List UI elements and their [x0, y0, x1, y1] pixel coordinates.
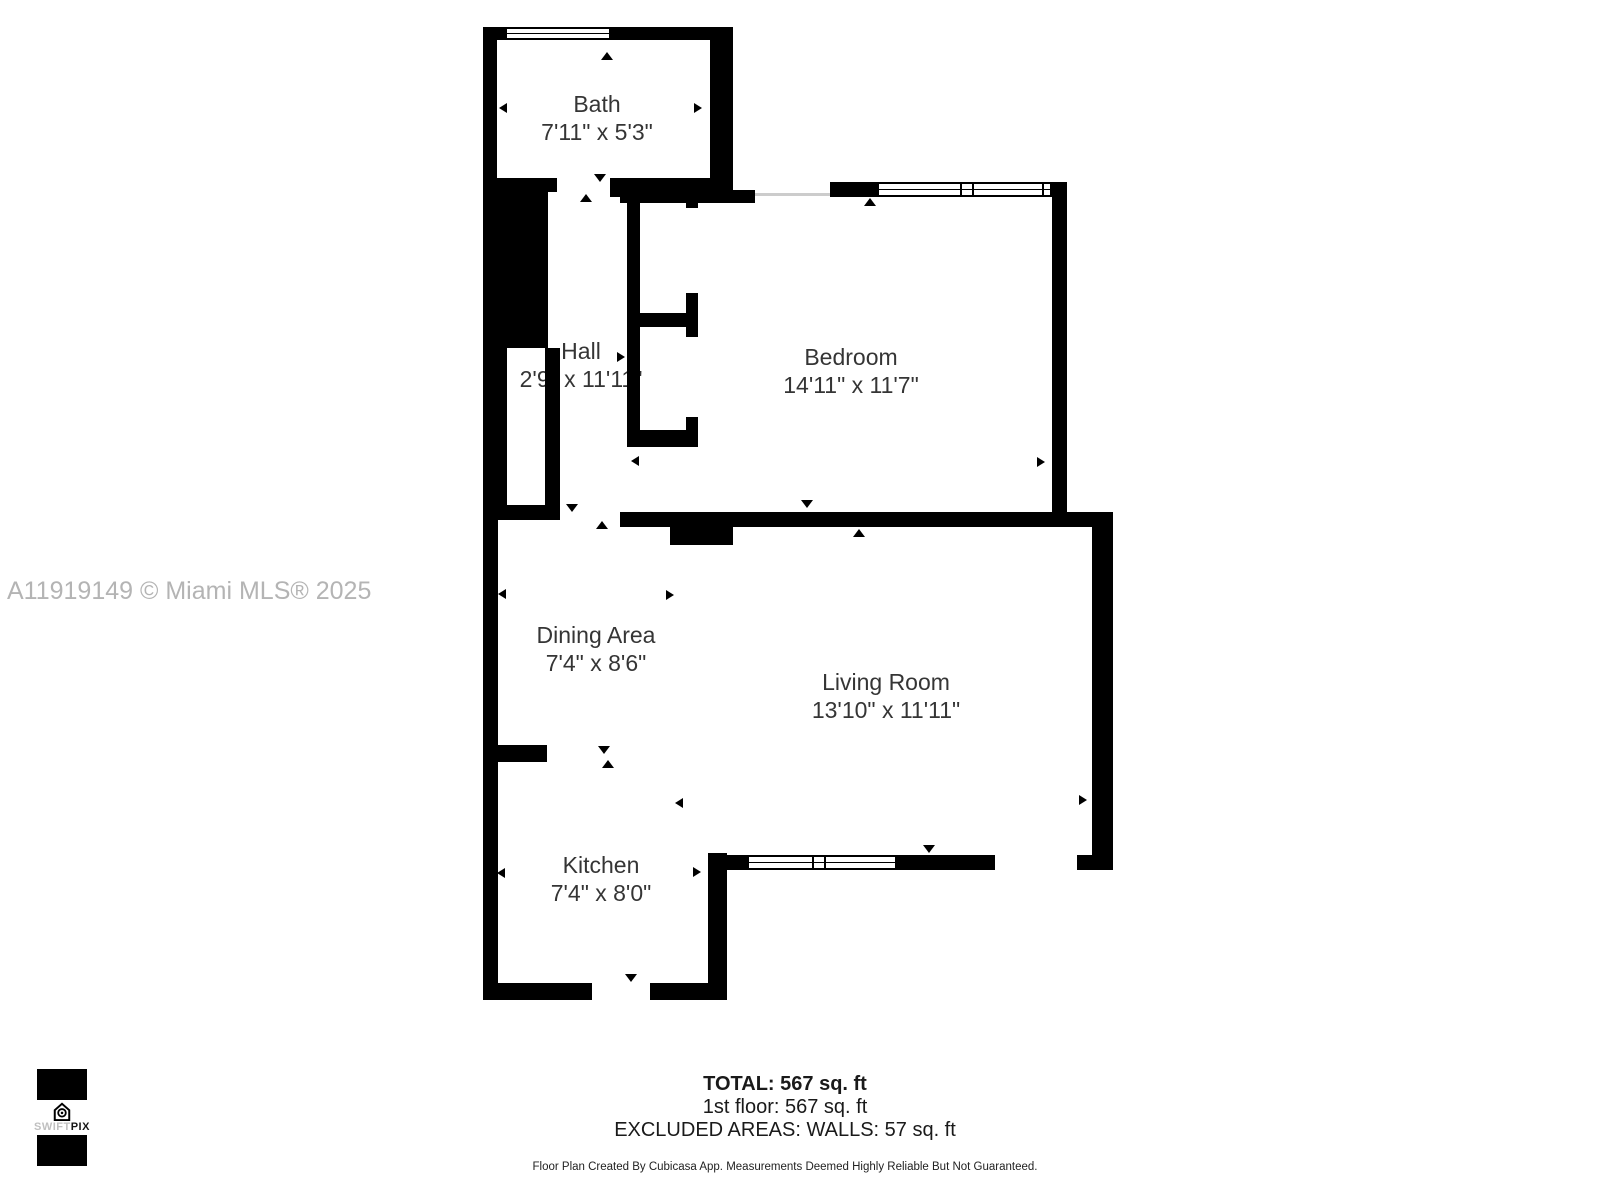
- wall-bedroom-bottom: [620, 512, 1067, 527]
- measure-arrow-right-icon: [617, 352, 625, 362]
- opening-threshold: [755, 193, 830, 196]
- wall-living-bottom-left: [708, 855, 747, 870]
- window-glass-line: [879, 189, 1050, 191]
- window-mullion: [972, 184, 974, 195]
- measure-arrow-up-icon: [853, 529, 865, 537]
- measure-arrow-up-icon: [601, 52, 613, 60]
- disclaimer-text: Floor Plan Created By Cubicasa App. Meas…: [533, 1161, 1038, 1173]
- wall-dining-kitchen-stub: [483, 745, 547, 762]
- wall-kitchen-left: [483, 762, 498, 1000]
- room-label-bath: Bath 7'11" x 5'3": [541, 90, 653, 146]
- room-name: Bedroom: [783, 343, 919, 371]
- room-dims: 13'10" x 11'11": [812, 696, 960, 724]
- wall-bedroom-right: [1052, 182, 1067, 527]
- room-name: Dining Area: [537, 621, 656, 649]
- wall-bath-top-left: [483, 27, 507, 40]
- measure-arrow-left-icon: [497, 868, 505, 878]
- room-name: Bath: [541, 90, 653, 118]
- logo-pix-text: PIX: [71, 1121, 90, 1133]
- logo-bottom-block: [37, 1135, 87, 1166]
- wall-closet-right-top: [686, 190, 698, 208]
- wall-living-right: [1092, 512, 1113, 855]
- room-name: Kitchen: [551, 851, 652, 879]
- measure-arrow-down-icon: [598, 746, 610, 754]
- measure-arrow-right-icon: [693, 867, 701, 877]
- room-label-living: Living Room 13'10" x 11'11": [812, 668, 960, 724]
- measure-arrow-up-icon: [596, 521, 608, 529]
- house-camera-icon: [52, 1102, 72, 1121]
- wall-hall-left: [545, 348, 560, 520]
- wall-kitchen-bottom-left: [483, 983, 592, 1000]
- measure-arrow-left-icon: [498, 589, 506, 599]
- measure-arrow-down-icon: [923, 845, 935, 853]
- wall-bath-left: [483, 27, 497, 192]
- wall-bedroom-top: [830, 182, 877, 197]
- wall-peninsula-stub: [670, 527, 733, 545]
- void-block: [483, 178, 548, 348]
- measure-arrow-down-icon: [594, 174, 606, 182]
- wall-bath-right: [710, 27, 733, 197]
- measure-arrow-right-icon: [1079, 795, 1087, 805]
- measure-arrow-down-icon: [801, 500, 813, 508]
- swiftpix-logo: SWIFTPIX: [37, 1069, 87, 1166]
- bedroom-window: [877, 182, 1052, 197]
- logo-top-block: [37, 1069, 87, 1100]
- wall-kitchen-right: [708, 853, 727, 1000]
- room-dims: 14'11" x 11'7": [783, 371, 919, 399]
- measure-arrow-left-icon: [675, 798, 683, 808]
- wall-living-bottom-right: [897, 855, 995, 870]
- room-dims: 7'4" x 8'6": [537, 649, 656, 677]
- measure-arrow-left-icon: [631, 456, 639, 466]
- living-room-window: [747, 855, 897, 870]
- logo-wordmark: SWIFTPIX: [34, 1121, 87, 1133]
- room-dims: 7'4" x 8'0": [551, 879, 652, 907]
- wall-niche-left: [483, 348, 507, 505]
- window-mullion: [960, 184, 962, 195]
- room-dims: 7'11" x 5'3": [541, 118, 653, 146]
- bath-window: [505, 27, 611, 40]
- floor-plan-image: A11919149 © Miami MLS® 2025 Bath 7'11" x…: [0, 0, 1600, 1200]
- measure-arrow-right-icon: [666, 590, 674, 600]
- room-label-bedroom: Bedroom 14'11" x 11'7": [783, 343, 919, 399]
- measure-arrow-up-icon: [580, 194, 592, 202]
- wall-closet-right-low: [686, 417, 698, 440]
- mls-watermark: A11919149 © Miami MLS® 2025: [7, 577, 371, 606]
- wall-closet-right-mid: [686, 293, 698, 337]
- room-dims: 2'9" x 11'11": [520, 365, 643, 393]
- total-area: TOTAL: 567 sq. ft: [614, 1073, 956, 1096]
- measure-arrow-down-icon: [625, 974, 637, 982]
- window-mullion: [824, 857, 826, 868]
- wall-living-corner: [1077, 855, 1113, 870]
- measure-arrow-up-icon: [864, 198, 876, 206]
- area-summary: TOTAL: 567 sq. ft 1st floor: 567 sq. ft …: [614, 1073, 956, 1142]
- excluded-areas: EXCLUDED AREAS: WALLS: 57 sq. ft: [614, 1119, 956, 1142]
- measure-arrow-left-icon: [549, 352, 557, 362]
- measure-arrow-left-icon: [499, 103, 507, 113]
- window-mullion: [812, 857, 814, 868]
- logo-swift-text: SWIFT: [34, 1121, 71, 1133]
- measure-arrow-up-icon: [602, 760, 614, 768]
- measure-arrow-down-icon: [566, 504, 578, 512]
- room-label-kitchen: Kitchen 7'4" x 8'0": [551, 851, 652, 907]
- room-label-dining: Dining Area 7'4" x 8'6": [537, 621, 656, 677]
- wall-dining-left: [483, 505, 498, 762]
- window-glass-line: [507, 33, 609, 35]
- window-glass-line: [749, 862, 895, 864]
- room-name: Living Room: [812, 668, 960, 696]
- measure-arrow-right-icon: [694, 103, 702, 113]
- logo-middle: SWIFTPIX: [37, 1102, 87, 1133]
- first-floor-area: 1st floor: 567 sq. ft: [614, 1096, 956, 1119]
- window-mullion: [1042, 184, 1044, 195]
- measure-arrow-right-icon: [1037, 457, 1045, 467]
